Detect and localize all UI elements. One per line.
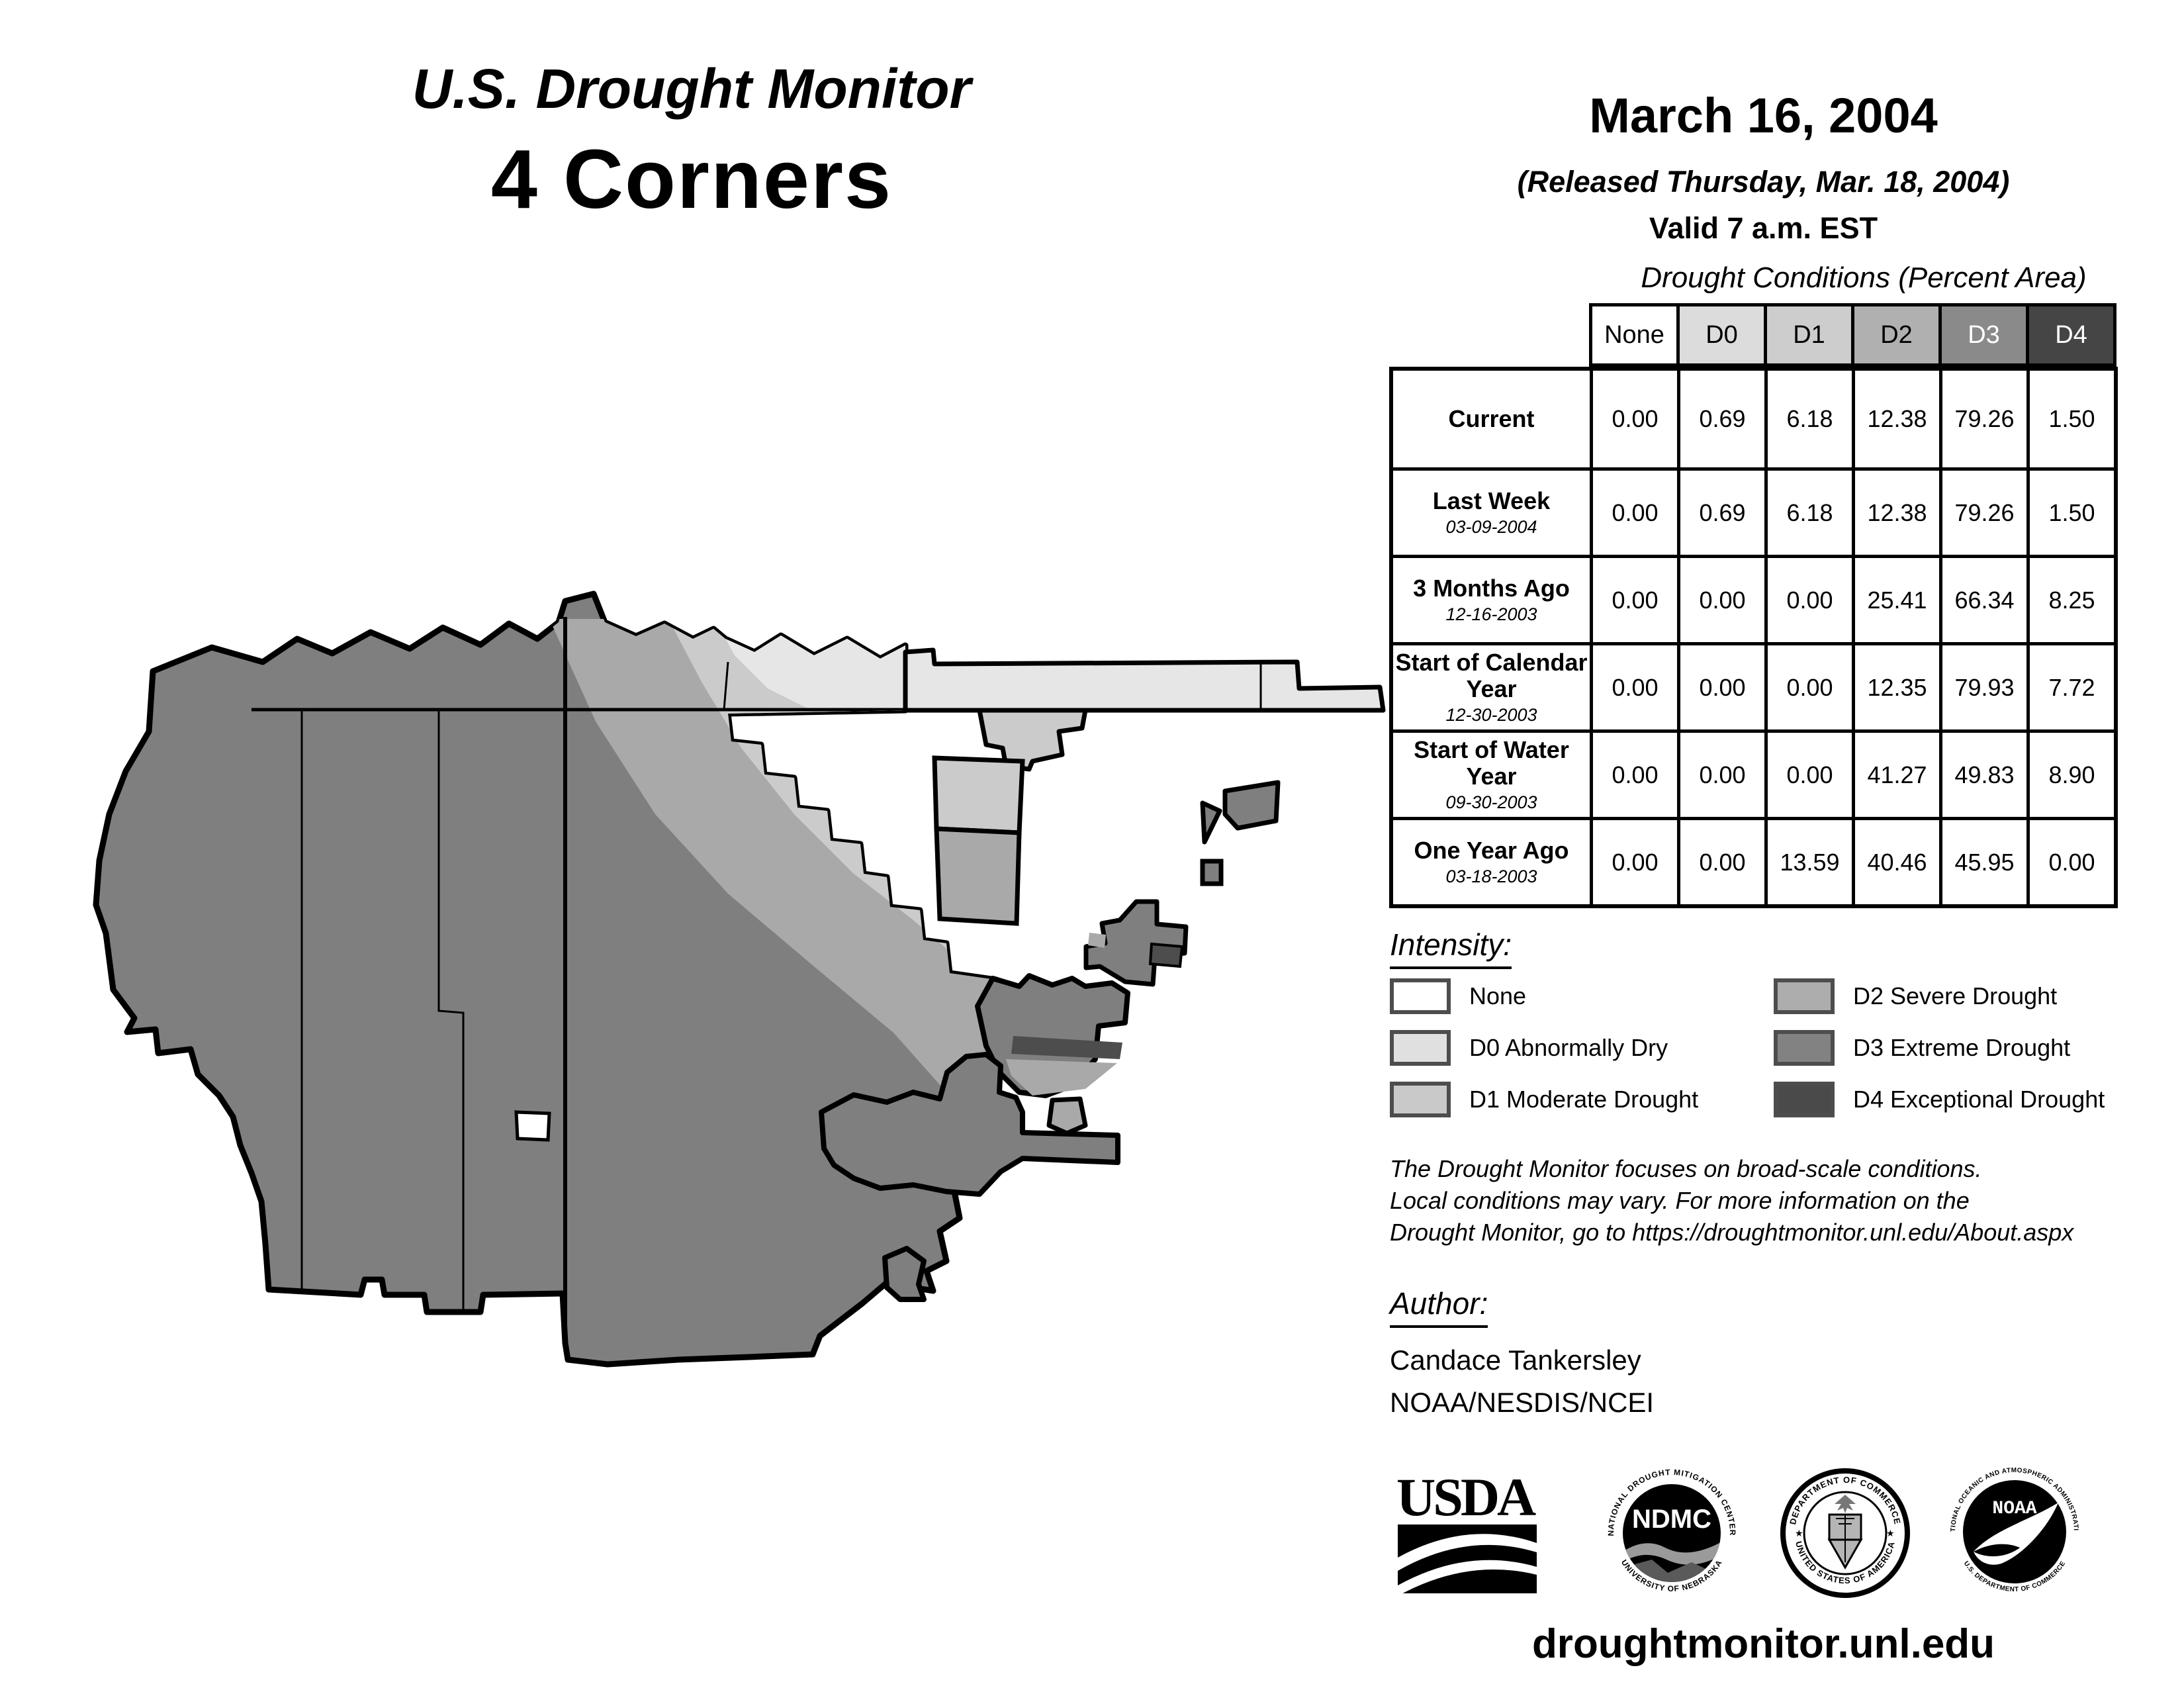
region-title: 4 Corners — [0, 138, 1383, 221]
table-header-row: None D0 D1 D2 D3 D4 — [1589, 303, 2116, 367]
column-header-d3: D3 — [1938, 303, 2029, 367]
legend-swatch-none — [1390, 978, 1451, 1014]
table-title: Drought Conditions (Percent Area) — [1589, 263, 2138, 293]
row-date: 09-30-2003 — [1445, 792, 1537, 813]
ndmc-wordmark: NDMC — [1632, 1505, 1711, 1534]
disclaimer-text: The Drought Monitor focuses on broad-sca… — [1390, 1153, 2158, 1248]
legend-swatch-d0 — [1390, 1030, 1451, 1066]
legend-item-d2: D2 Severe Drought — [1774, 978, 2057, 1014]
legend-item-d0: D0 Abnormally Dry — [1390, 1030, 1668, 1066]
column-header-none: None — [1589, 303, 1680, 367]
released-date: (Released Thursday, Mar. 18, 2004) — [1389, 167, 2138, 197]
column-header-d0: D0 — [1676, 303, 1767, 367]
map-cluster-central — [1086, 902, 1186, 984]
drought-monitor-report: { "header": { "title": "U.S. Drought Mon… — [0, 0, 2184, 1688]
author-name: Candace Tankersley — [1390, 1346, 1641, 1374]
row-date: 03-09-2004 — [1445, 517, 1537, 538]
legend-item-none: None — [1390, 978, 1526, 1014]
svg-text:★: ★ — [1795, 1528, 1803, 1538]
row-label: One Year Ago — [1414, 837, 1569, 864]
map-island-ne — [1225, 782, 1278, 828]
drought-map — [0, 576, 1423, 1436]
drought-conditions-table: Current 0.00 0.69 6.18 12.38 79.26 1.50 … — [1389, 367, 2118, 908]
column-header-d2: D2 — [1851, 303, 1942, 367]
row-label: Current — [1448, 406, 1534, 432]
legend-swatch-d1 — [1390, 1082, 1451, 1117]
column-header-d4: D4 — [2026, 303, 2116, 367]
usda-wordmark: USDA — [1398, 1473, 1536, 1527]
usda-logo: USDA — [1398, 1473, 1537, 1602]
map-island-square — [1203, 861, 1221, 884]
legend-item-d1: D1 Moderate Drought — [1390, 1082, 1698, 1117]
legend-swatch-d3 — [1774, 1030, 1835, 1066]
map-region-strip-d0 — [905, 650, 1383, 710]
footer-url: droughtmonitor.unl.edu — [1389, 1620, 2138, 1667]
legend-heading: Intensity: — [1390, 929, 1512, 960]
row-label: Last Week — [1433, 488, 1550, 514]
row-label: 3 Months Ago — [1413, 575, 1570, 602]
noaa-logo: NOAA NATIONAL OCEANIC AND ATMOSPHERIC AD… — [1948, 1466, 2081, 1601]
legend-swatch-d2 — [1774, 978, 1835, 1014]
legend-item-d3: D3 Extreme Drought — [1774, 1030, 2070, 1066]
row-date: 03-18-2003 — [1445, 867, 1537, 887]
column-header-d1: D1 — [1764, 303, 1854, 367]
department-of-commerce-seal: DEPARTMENT OF COMMERCE UNITED STATES OF … — [1779, 1467, 1911, 1603]
row-label: Start of Water Year — [1393, 737, 1590, 790]
row-date: 12-16-2003 — [1445, 604, 1537, 625]
row-date: 12-30-2003 — [1445, 705, 1537, 726]
row-label: Start of Calendar Year — [1393, 649, 1590, 703]
author-heading: Author: — [1390, 1288, 1488, 1319]
valid-time: Valid 7 a.m. EST — [1389, 213, 2138, 243]
map-parcel-d1 — [934, 758, 1023, 833]
legend-swatch-d4 — [1774, 1082, 1835, 1117]
map-date: March 16, 2004 — [1389, 91, 2138, 140]
ndmc-logo: NDMC NATIONAL DROUGHT MITIGATION CENTER … — [1603, 1464, 1741, 1605]
map-pentagon — [1049, 1099, 1085, 1133]
map-island-south — [885, 1248, 924, 1299]
legend-item-d4: D4 Exceptional Drought — [1774, 1082, 2105, 1117]
map-inholding — [516, 1112, 549, 1140]
svg-text:★: ★ — [1886, 1528, 1895, 1538]
map-island-triangle — [1203, 803, 1220, 842]
map-parcel-d2 — [936, 829, 1019, 923]
author-org: NOAA/NESDIS/NCEI — [1390, 1389, 1654, 1417]
page-title: U.S. Drought Monitor — [0, 61, 1383, 117]
noaa-wordmark: NOAA — [1992, 1499, 2036, 1519]
